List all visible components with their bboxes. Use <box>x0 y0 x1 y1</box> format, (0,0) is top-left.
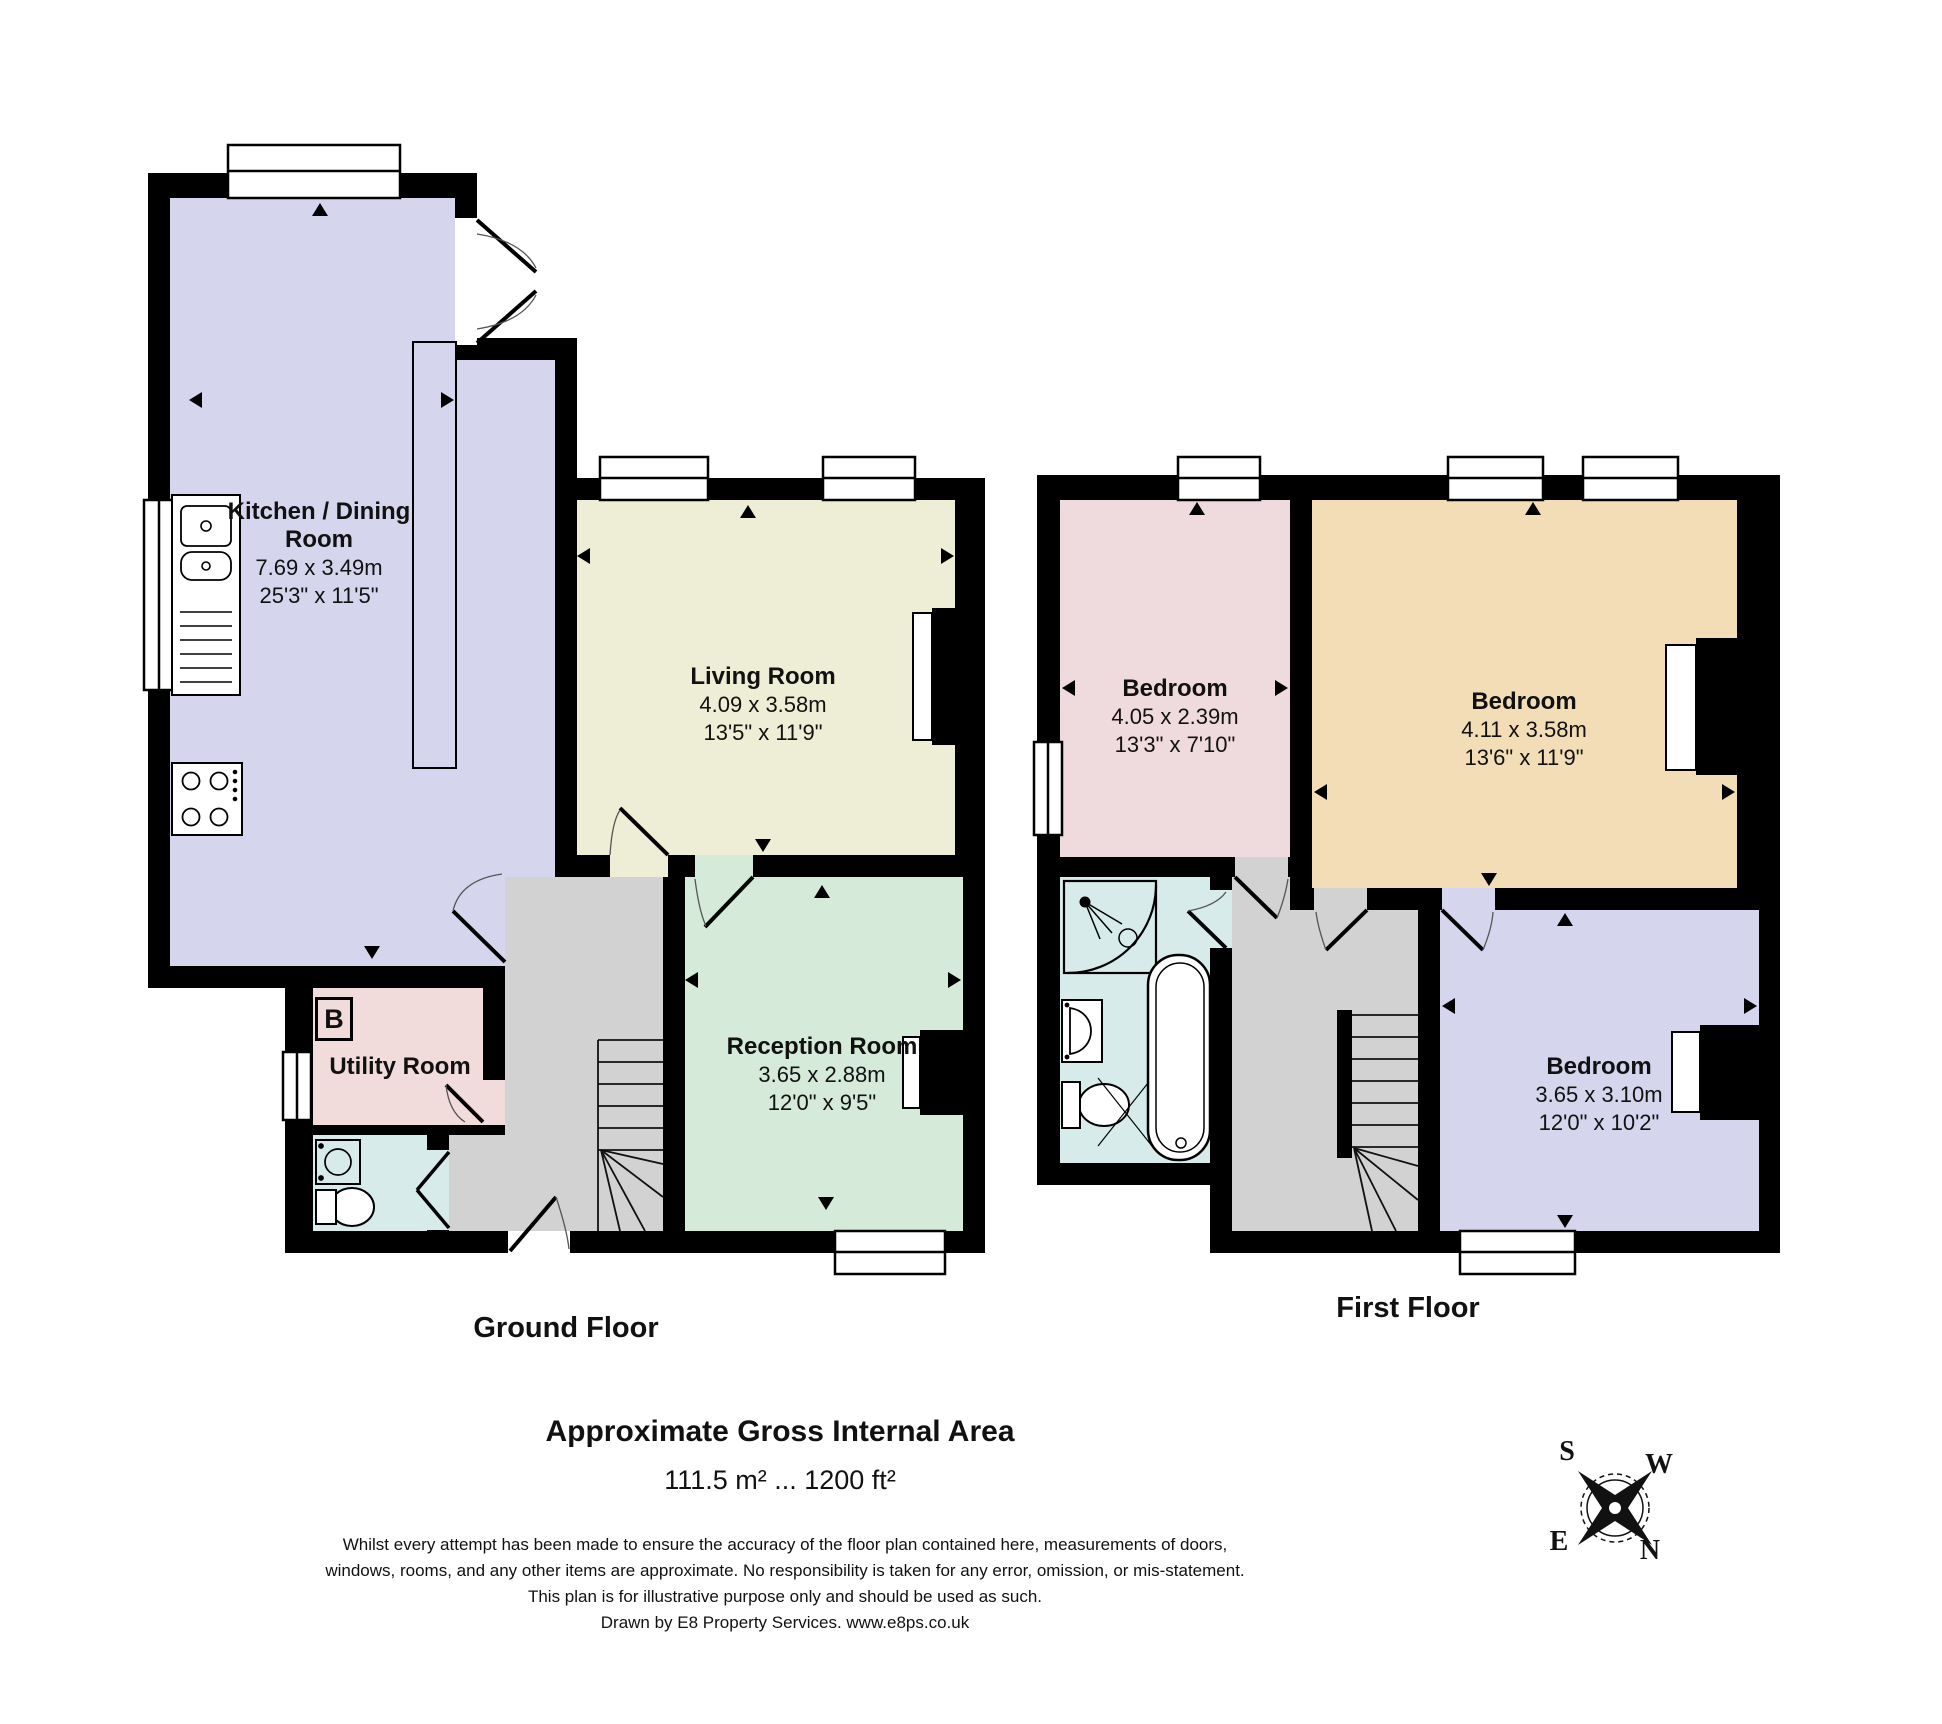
disclaimer-line-1: Whilst every attempt has been made to en… <box>325 1532 1244 1558</box>
compass-south: S <box>1559 1436 1575 1468</box>
bedroom1-size-imperial: 13'3" x 7'10" <box>1111 731 1238 759</box>
bedroom3-bottom-window <box>1460 1231 1575 1274</box>
stair-wall-stub <box>1337 1010 1352 1158</box>
kitchen-top-window <box>228 145 400 198</box>
bedroom2-window-left <box>1448 457 1543 500</box>
kitchen-name: Kitchen / Dining Room <box>194 498 444 554</box>
room-hallway <box>505 877 663 1231</box>
bedroom3-chimney-breast <box>1672 1025 1759 1120</box>
kitchen-left-window <box>144 500 174 690</box>
living-chimney-breast <box>913 608 955 745</box>
compass-rose-icon <box>1578 1471 1652 1545</box>
bedroom3-label: Bedroom 3.65 x 3.10m 12'0" x 10'2" <box>1535 1053 1662 1137</box>
kitchen-size-metric: 7.69 x 3.49m <box>194 554 444 582</box>
boiler-box: B <box>315 997 353 1041</box>
bathroom-sink-icon <box>1062 1000 1102 1062</box>
reception-size-imperial: 12'0" x 9'5" <box>727 1089 918 1117</box>
bedroom3-name: Bedroom <box>1535 1053 1662 1081</box>
bedroom1-label: Bedroom 4.05 x 2.39m 13'3" x 7'10" <box>1111 675 1238 759</box>
reception-label: Reception Room 3.65 x 2.88m 12'0" x 9'5" <box>727 1033 918 1117</box>
utility-left-window <box>283 1052 311 1120</box>
bedroom1-name: Bedroom <box>1111 675 1238 703</box>
ground-floor-label: Ground Floor <box>473 1312 658 1345</box>
room-landing-a <box>1232 877 1290 1231</box>
reception-size-metric: 3.65 x 2.88m <box>727 1061 918 1089</box>
first-floor-label: First Floor <box>1336 1292 1479 1325</box>
utility-name: Utility Room <box>329 1053 470 1081</box>
compass-east: E <box>1550 1526 1569 1558</box>
living-name: Living Room <box>690 663 835 691</box>
bedroom1-size-metric: 4.05 x 2.39m <box>1111 703 1238 731</box>
bedroom2-label: Bedroom 4.11 x 3.58m 13'6" x 11'9" <box>1461 688 1587 772</box>
bedroom2-chimney-breast <box>1666 638 1737 775</box>
disclaimer-line-4: Drawn by E8 Property Services. www.e8ps.… <box>325 1610 1244 1636</box>
utility-label: Utility Room <box>329 1053 470 1081</box>
kitchen-size-imperial: 25'3" x 11'5" <box>194 582 444 610</box>
living-window-left <box>600 457 708 500</box>
room-kitchen-dining-ext <box>455 360 555 966</box>
bedroom2-window-right <box>1583 457 1678 500</box>
disclaimer-line-3: This plan is for illustrative purpose on… <box>325 1584 1244 1610</box>
living-label: Living Room 4.09 x 3.58m 13'5" x 11'9" <box>690 663 835 747</box>
bedroom2-name: Bedroom <box>1461 688 1587 716</box>
reception-name: Reception Room <box>727 1033 918 1061</box>
living-size-imperial: 13'5" x 11'9" <box>690 719 835 747</box>
disclaimer-line-2: windows, rooms, and any other items are … <box>325 1558 1244 1584</box>
stove-icon <box>172 763 242 835</box>
first-floor-plan <box>1034 457 1780 1274</box>
area-heading: Approximate Gross Internal Area <box>545 1415 1014 1449</box>
reception-bottom-window <box>835 1231 945 1274</box>
bedroom3-size-metric: 3.65 x 3.10m <box>1535 1081 1662 1109</box>
bedroom2-size-imperial: 13'6" x 11'9" <box>1461 744 1587 772</box>
boiler-letter: B <box>324 1004 344 1035</box>
living-window-right <box>823 457 915 500</box>
bedroom2-size-metric: 4.11 x 3.58m <box>1461 716 1587 744</box>
room-hallway-lower <box>449 1135 505 1231</box>
living-size-metric: 4.09 x 3.58m <box>690 691 835 719</box>
compass-north: N <box>1640 1535 1660 1567</box>
area-value: 111.5 m² ... 1200 ft² <box>664 1465 896 1496</box>
disclaimer-text: Whilst every attempt has been made to en… <box>325 1532 1244 1636</box>
bath-icon <box>1148 955 1210 1160</box>
wc-toilet-icon <box>316 1188 374 1226</box>
kitchen-label: Kitchen / Dining Room 7.69 x 3.49m 25'3"… <box>194 498 444 610</box>
compass-west: W <box>1645 1449 1673 1481</box>
room-landing-b <box>1290 910 1418 1231</box>
bedroom1-left-window <box>1034 742 1062 835</box>
bedroom1-top-window <box>1178 457 1260 500</box>
floorplan-page: Kitchen / Dining Room 7.69 x 3.49m 25'3"… <box>0 0 1942 1724</box>
bedroom3-size-imperial: 12'0" x 10'2" <box>1535 1109 1662 1137</box>
